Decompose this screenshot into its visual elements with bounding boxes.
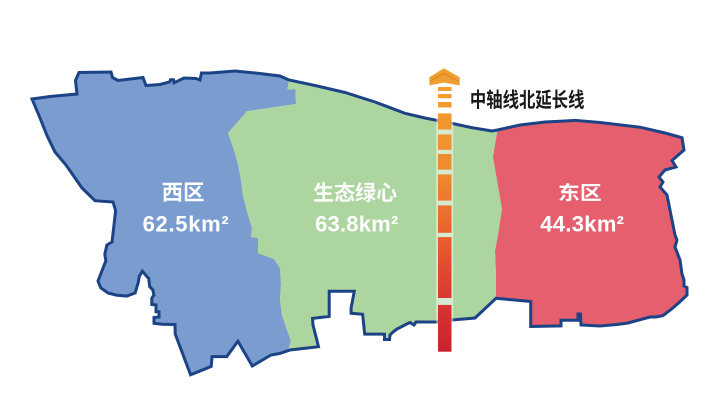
svg-text:62.5km²: 62.5km² bbox=[143, 211, 230, 236]
svg-text:63.8km²: 63.8km² bbox=[315, 211, 398, 236]
svg-text:44.3km²: 44.3km² bbox=[540, 211, 624, 236]
